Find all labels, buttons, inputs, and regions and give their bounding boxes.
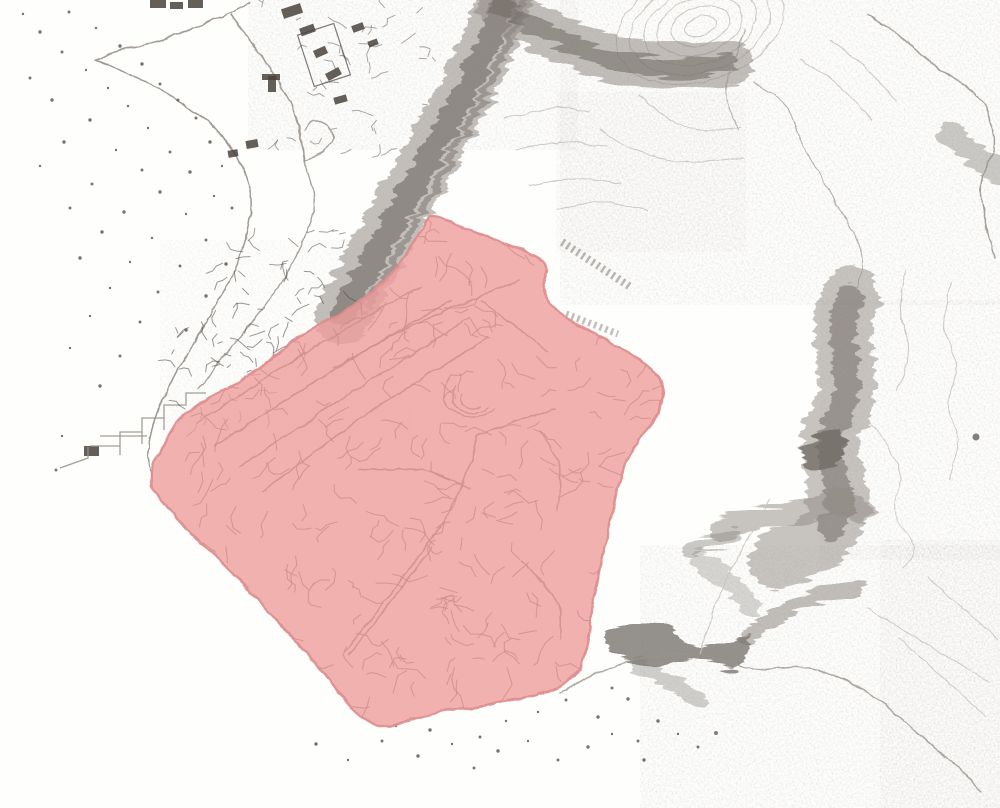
sea-dot	[119, 355, 122, 358]
sea-dot	[231, 207, 234, 210]
building	[170, 2, 183, 9]
sea-dot	[314, 742, 317, 745]
sea-dot	[50, 98, 53, 101]
sea-dot	[221, 165, 223, 167]
map-image	[0, 0, 1000, 808]
sea-dot	[347, 759, 349, 761]
sea-dot	[151, 237, 153, 239]
sea-dot	[141, 169, 144, 172]
sea-dot	[697, 746, 700, 749]
sea-dot	[496, 749, 499, 752]
sea-dot	[213, 195, 215, 197]
sea-dot	[109, 287, 111, 289]
map-layers	[0, 0, 1000, 808]
map-viewport	[0, 0, 1000, 808]
paper-texture	[556, 92, 746, 252]
sea-dot	[428, 728, 431, 731]
sea-dot	[157, 291, 160, 294]
sea-dot	[586, 745, 589, 748]
sea-dot	[115, 149, 117, 151]
sea-dot	[179, 265, 182, 268]
sea-dot	[159, 83, 162, 86]
sea-dot	[505, 720, 507, 722]
sea-dot	[127, 105, 129, 107]
sea-dot	[22, 13, 24, 15]
town-building-line	[332, 231, 338, 232]
sea-dot	[55, 469, 58, 472]
sea-dot	[557, 759, 560, 762]
map-dot	[714, 731, 718, 735]
sea-dot	[479, 736, 482, 739]
sea-dot	[62, 140, 65, 143]
sea-dot	[147, 127, 149, 129]
sea-dot	[473, 767, 476, 770]
sea-dot	[188, 170, 191, 173]
sea-dot	[527, 740, 529, 742]
town-building-line	[422, 104, 427, 105]
sea-dot	[185, 213, 187, 215]
sea-dot	[61, 51, 64, 54]
building	[150, 0, 166, 8]
paper-texture	[880, 540, 1000, 808]
map-dot	[973, 434, 980, 441]
sea-dot	[537, 711, 539, 713]
sea-dot	[677, 733, 679, 735]
sea-dot	[98, 384, 101, 387]
sea-dot	[204, 294, 207, 297]
sea-dot	[451, 743, 453, 745]
sea-dot	[626, 697, 629, 700]
sea-dot	[208, 140, 211, 143]
sea-dot	[611, 733, 613, 735]
sea-dot	[656, 719, 659, 722]
building	[188, 0, 203, 8]
sea-dot	[39, 165, 41, 167]
sea-dot	[205, 239, 208, 242]
sea-dot	[95, 27, 97, 29]
sea-dot	[416, 754, 419, 757]
building	[262, 74, 280, 80]
sea-dot	[195, 117, 198, 120]
sea-dot	[88, 118, 91, 121]
sea-dot	[118, 44, 121, 47]
sea-dot	[565, 699, 568, 702]
sea-dot	[177, 99, 180, 102]
sea-dot	[91, 183, 94, 186]
town-building-line	[325, 82, 338, 83]
sea-dot	[68, 11, 71, 14]
sea-dot	[611, 687, 614, 690]
sea-dot	[637, 740, 640, 743]
sea-dot	[381, 740, 384, 743]
sea-dot	[69, 207, 72, 210]
sea-dot	[29, 77, 32, 80]
sea-dot	[107, 87, 109, 89]
sea-dot	[85, 69, 87, 71]
sea-dot	[100, 230, 103, 233]
sea-dot	[184, 328, 187, 331]
sea-dot	[224, 262, 227, 265]
sea-dot	[158, 190, 161, 193]
building	[84, 446, 99, 456]
sea-dot	[169, 151, 172, 154]
sea-dot	[139, 321, 142, 324]
sea-dot	[140, 62, 143, 65]
sea-dot	[642, 758, 645, 761]
sea-dot	[78, 256, 81, 259]
sea-dot	[89, 315, 91, 317]
sea-dot	[61, 435, 63, 437]
sea-dot	[69, 347, 71, 349]
sea-dot	[122, 210, 125, 213]
sea-dot	[129, 261, 131, 263]
sea-dot	[38, 30, 41, 33]
sea-dot	[596, 715, 599, 718]
